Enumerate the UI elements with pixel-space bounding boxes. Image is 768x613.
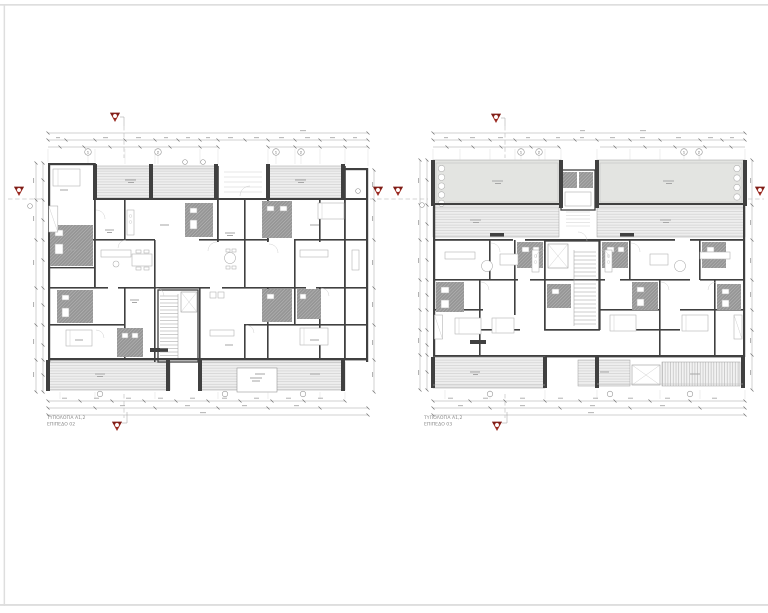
- floor-plan-level-02: 1 2 1 2 ΤΥΠΟΛΟΓΙΑ A1,2 ΕΠΙΠΕΔΟ 02: [28, 131, 376, 428]
- section-marker-icon: [14, 187, 24, 196]
- section-marker-icon: [491, 114, 501, 123]
- section-marker-icon: [492, 422, 502, 431]
- grid-bubble-label: 1: [520, 150, 522, 154]
- elevator-shaft: [181, 292, 197, 312]
- terrace-left: [433, 160, 561, 207]
- grid-bubble-label: 1: [683, 150, 685, 154]
- grid-bubble-label: 1: [87, 150, 89, 154]
- plan-title: ΤΥΠΟΛΟΓΙΑ A1,2: [423, 415, 462, 421]
- grid-bubble-label: 2: [538, 150, 540, 154]
- veranda-strip: [433, 207, 745, 237]
- plan-title: ΤΥΠΟΛΟΓΙΑ A1,2: [46, 415, 85, 421]
- plan-title-block: ΤΥΠΟΛΟΓΙΑ A1,2 ΕΠΙΠΕΔΟ 03: [423, 415, 462, 428]
- skylight-box: [632, 365, 660, 385]
- drawing-sheet: 1 2 1 2 ΤΥΠΟΛΟΓΙΑ A1,2 ΕΠΙΠΕΔΟ 02: [0, 0, 768, 613]
- furniture: [435, 250, 743, 339]
- plan-level-label: ΕΠΙΠΕΔΟ 02: [47, 422, 75, 428]
- grid-bubble-label: 2: [698, 150, 700, 154]
- balconies-top: [95, 166, 345, 198]
- grid-bubble-label: 2: [300, 150, 302, 154]
- section-marker-icon: [110, 113, 120, 122]
- section-marker-icon: [393, 187, 403, 196]
- grid-bubble-label: 2: [157, 150, 159, 154]
- wet-areas: [436, 242, 741, 312]
- floor-plan-level-03: 1 2 1 2 ΤΥΠΟΛΟΓΙΑ A1,2 ΕΠΙΠΕΔΟ 03: [419, 131, 754, 428]
- terrace-right: [597, 160, 745, 205]
- plan-level-label: ΕΠΙΠΕΔΟ 03: [424, 422, 452, 428]
- floor-plan-canvas: 1 2 1 2 ΤΥΠΟΛΟΓΙΑ A1,2 ΕΠΙΠΕΔΟ 02: [0, 0, 768, 613]
- balconies-bottom: [48, 362, 345, 390]
- section-marker-icon: [373, 187, 383, 196]
- balconies-bottom: [431, 357, 745, 388]
- section-marker-icon: [755, 187, 765, 196]
- grid-bubble-label: 1: [275, 150, 277, 154]
- elevator-shaft: [548, 244, 568, 268]
- section-marker-icon: [112, 422, 122, 431]
- plan-title-block: ΤΥΠΟΛΟΓΙΑ A1,2 ΕΠΙΠΕΔΟ 02: [46, 415, 85, 428]
- bottom-annex-box: [237, 368, 277, 392]
- core-upper: [561, 170, 595, 226]
